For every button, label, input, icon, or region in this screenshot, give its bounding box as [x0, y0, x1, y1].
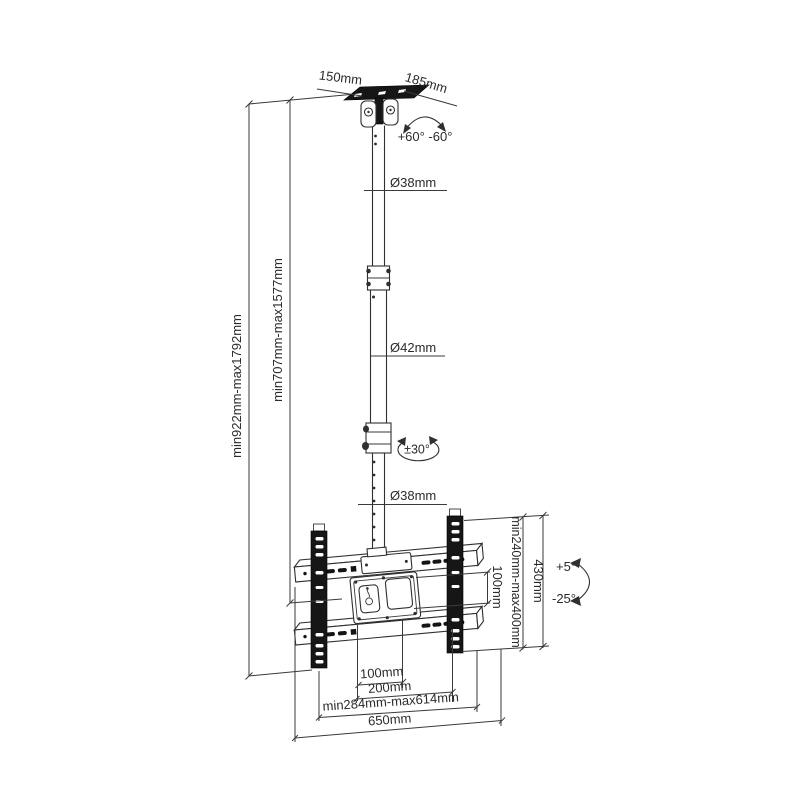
diagram-canvas: 150mm 185mm +60° -60° Ø38mm Ø42mm ±30° Ø…: [0, 0, 800, 800]
right-tv-rail: [447, 509, 463, 653]
total-width-label: 650mm: [368, 711, 412, 729]
upper-pole-diameter-label: Ø38mm: [390, 175, 436, 190]
dim-pole-drop: min707mm-max1577mm: [270, 97, 342, 607]
dim-total-width: 650mm: [292, 711, 505, 741]
swivel-range-indicator: +60° -60°: [398, 117, 453, 144]
telescopic-pole: [362, 126, 391, 560]
tilt-down-label: -25°: [552, 591, 576, 606]
vesa-plate: [350, 572, 421, 624]
overall-drop-label: min922mm-max1792mm: [229, 314, 244, 458]
dim-lower-pole-diameter: Ø38mm: [358, 488, 447, 505]
product-diagram: 150mm 185mm +60° -60° Ø38mm Ø42mm ±30° Ø…: [0, 0, 800, 800]
bracket-height-label: 430mm: [531, 559, 546, 602]
left-tv-rail: [311, 524, 327, 668]
tilt-range-indicator: +5° -25°: [552, 558, 590, 606]
pole-drop-label: min707mm-max1577mm: [270, 258, 285, 402]
dim-middle-pole-diameter: Ø42mm: [371, 340, 445, 356]
middle-pole-diameter-label: Ø42mm: [390, 340, 436, 355]
bracket-height-range-label: min240mm-max400mm: [509, 516, 523, 647]
dim-upper-pole-diameter: Ø38mm: [364, 175, 447, 191]
pole-swivel-label: ±30°: [404, 443, 430, 457]
lower-pole-diameter-label: Ø38mm: [390, 488, 436, 503]
vesa-vertical-label: 100mm: [490, 565, 505, 608]
swivel-range-label: +60° -60°: [398, 129, 453, 144]
tilt-up-label: +5°: [556, 559, 576, 574]
ceiling-plate: [344, 85, 429, 127]
ceiling-plate-width-label: 150mm: [318, 67, 363, 87]
pole-swivel-indicator: ±30°: [397, 436, 439, 461]
